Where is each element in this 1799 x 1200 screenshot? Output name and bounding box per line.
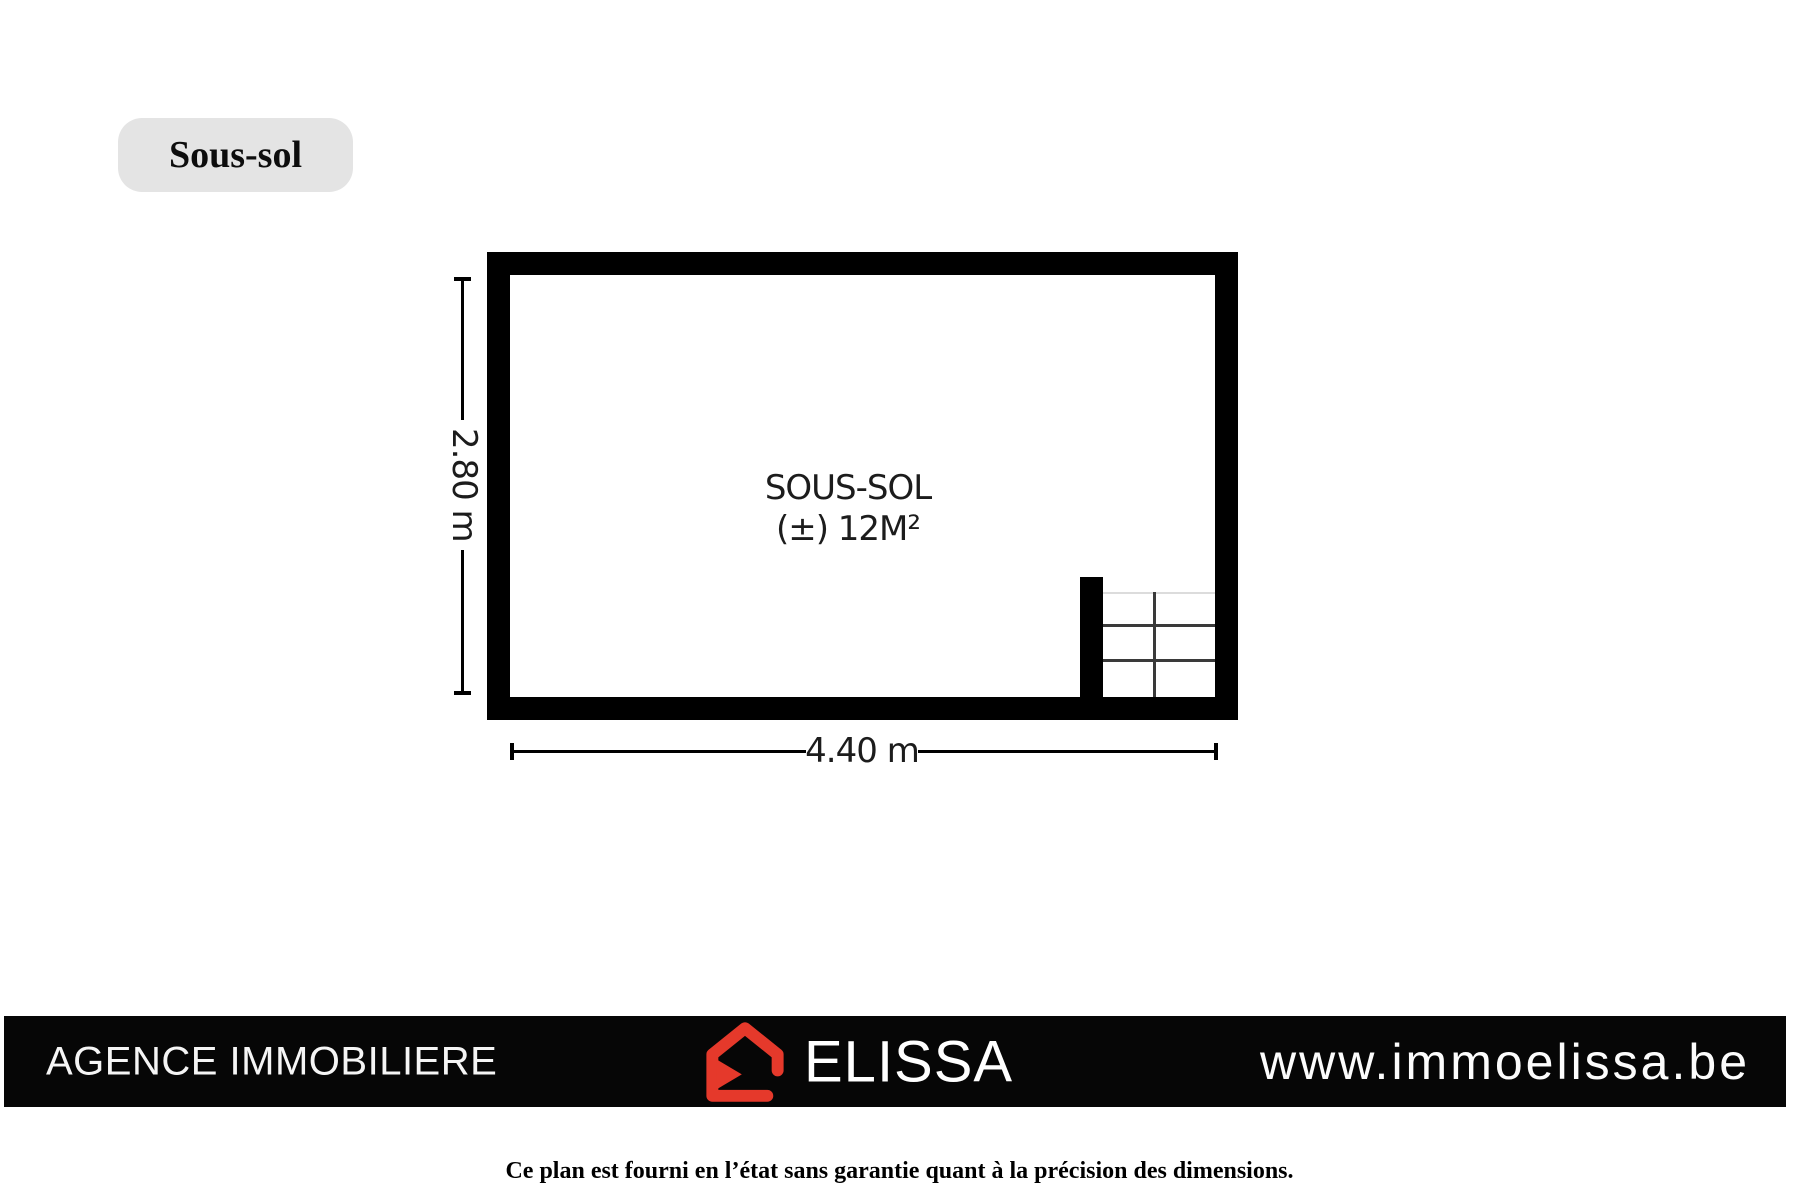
stair-divider-line bbox=[1153, 592, 1156, 697]
house-icon bbox=[704, 1021, 786, 1103]
floor-badge: Sous-sol bbox=[118, 118, 353, 192]
footer-bar: AGENCE IMMOBILIERE ELISSA www.immoelissa… bbox=[4, 1016, 1786, 1107]
dimension-line bbox=[918, 750, 1215, 753]
stairs-top-edge bbox=[1103, 592, 1215, 594]
footer-agency-text: AGENCE IMMOBILIERE bbox=[46, 1039, 497, 1084]
dimension-terminator bbox=[454, 691, 471, 695]
stairs bbox=[1103, 592, 1215, 697]
dimension-height-label: 2.80 m bbox=[440, 420, 484, 550]
footer-brand-name: ELISSA bbox=[804, 1028, 1013, 1095]
room-label: SOUS-SOL (±) 12M² bbox=[765, 468, 931, 550]
stairs-wall bbox=[1080, 577, 1103, 697]
dimension-line bbox=[514, 750, 806, 753]
stair-tread-line bbox=[1103, 659, 1215, 662]
dimension-line bbox=[461, 550, 464, 691]
floor-badge-label: Sous-sol bbox=[169, 133, 302, 177]
floorplan-page: Sous-sol SOUS-SOL (±) 12M² 2.80 m 4.40 m… bbox=[0, 0, 1799, 1200]
stair-tread-line bbox=[1103, 624, 1215, 627]
footer-website: www.immoelissa.be bbox=[1260, 1033, 1750, 1091]
room-area: (±) 12M² bbox=[765, 509, 931, 550]
dimension-terminator bbox=[1214, 743, 1218, 760]
dimension-line bbox=[461, 281, 464, 420]
dimension-width-label: 4.40 m bbox=[805, 731, 919, 771]
disclaimer-text: Ce plan est fourni en l’état sans garant… bbox=[505, 1158, 1293, 1185]
room-name: SOUS-SOL bbox=[765, 468, 931, 509]
